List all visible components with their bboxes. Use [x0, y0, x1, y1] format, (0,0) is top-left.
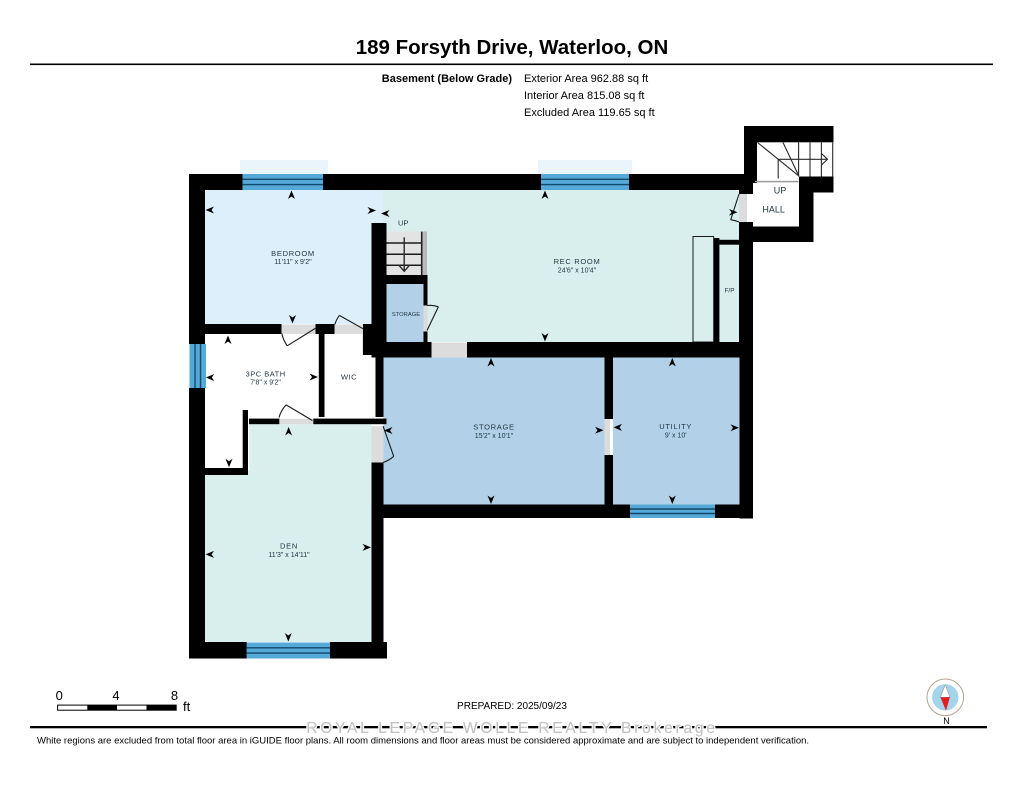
svg-text:4: 4 [112, 688, 119, 703]
svg-text:STORAGE: STORAGE [392, 312, 420, 318]
svg-text:ft: ft [183, 699, 191, 714]
svg-text:0: 0 [56, 688, 63, 703]
svg-text:STORAGE: STORAGE [473, 423, 514, 432]
svg-text:UP: UP [398, 219, 408, 228]
svg-text:3PC BATH: 3PC BATH [246, 369, 286, 378]
svg-text:BEDROOM: BEDROOM [271, 249, 315, 258]
svg-text:15'2" x 10'1": 15'2" x 10'1" [475, 433, 514, 440]
svg-text:Interior Area 815.08 sq ft: Interior Area 815.08 sq ft [524, 90, 644, 102]
svg-text:REC ROOM: REC ROOM [554, 257, 601, 266]
svg-text:PREPARED: 2025/09/23: PREPARED: 2025/09/23 [457, 701, 567, 712]
svg-text:8: 8 [171, 688, 178, 703]
svg-text:UP: UP [774, 186, 787, 196]
svg-text:F/P: F/P [724, 288, 734, 295]
svg-text:ROYAL LEPAGE WOLLE REALTY Bro: ROYAL LEPAGE WOLLE REALTY Brokerage [306, 720, 718, 737]
svg-text:WIC: WIC [341, 373, 357, 382]
svg-text:DEN: DEN [280, 542, 298, 551]
svg-text:HALL: HALL [762, 205, 785, 215]
svg-text:7'8" x 9'2": 7'8" x 9'2" [250, 380, 281, 387]
svg-text:Excluded Area 119.65 sq ft: Excluded Area 119.65 sq ft [524, 107, 655, 119]
svg-text:11'11" x 9'2": 11'11" x 9'2" [274, 259, 312, 266]
svg-text:Basement (Below Grade): Basement (Below Grade) [382, 73, 513, 85]
svg-text:11'3" x 14'11": 11'3" x 14'11" [268, 552, 310, 559]
svg-text:UTILITY: UTILITY [659, 422, 692, 431]
svg-text:N: N [943, 716, 950, 726]
svg-text:189 Forsyth Drive, Waterloo, O: 189 Forsyth Drive, Waterloo, ON [356, 36, 669, 59]
svg-text:Exterior Area 962.88 sq ft: Exterior Area 962.88 sq ft [524, 73, 648, 85]
svg-text:White regions are excluded fro: White regions are excluded from total fl… [37, 736, 809, 747]
svg-text:9' x 10': 9' x 10' [665, 432, 687, 439]
svg-text:24'6" x 10'4": 24'6" x 10'4" [558, 268, 597, 275]
